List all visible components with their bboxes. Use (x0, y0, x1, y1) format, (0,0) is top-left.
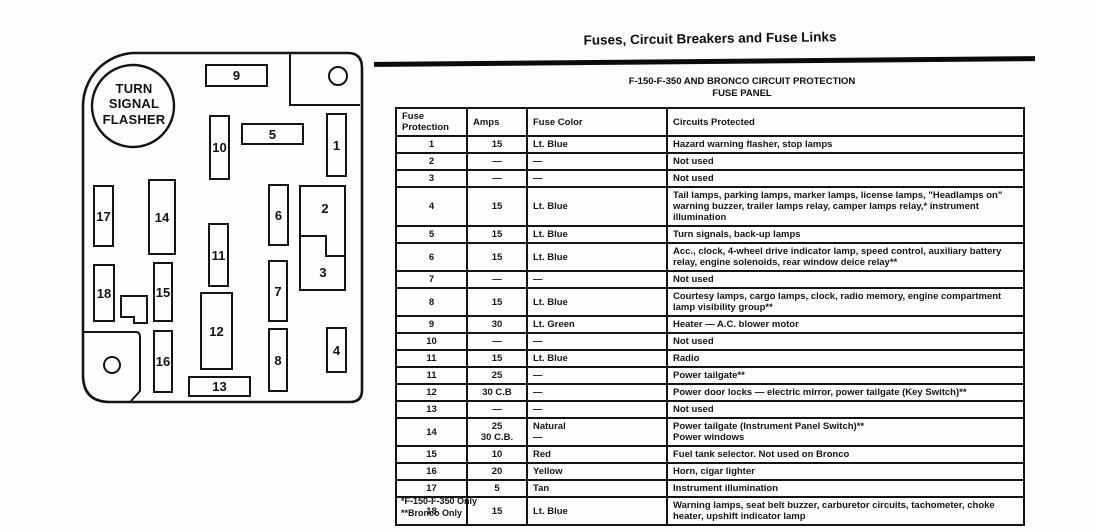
table-row: 815Lt. BlueCourtesy lamps, cargo lamps, … (396, 288, 1024, 316)
table-row: 1125—Power tailgate** (396, 367, 1024, 384)
cell-fuse: 9 (396, 316, 467, 333)
fusebox-7: 7 (268, 260, 288, 322)
cell-circuits: Not used (667, 153, 1024, 170)
cell-amps: 15 (467, 243, 527, 271)
cell-color: Lt. Blue (527, 497, 667, 525)
cell-amps: — (467, 271, 527, 288)
cell-circuits: Not used (667, 401, 1024, 418)
fuse-panel-table: Fuse Protection Amps Fuse Color Circuits… (395, 107, 1025, 526)
cell-circuits: Warning lamps, seat belt buzzer, carbure… (667, 497, 1024, 525)
footnote-bronco: **Bronco Only (401, 507, 477, 519)
cell-color: — (527, 401, 667, 418)
table-row: 7——Not used (396, 271, 1024, 288)
table-row: 1425 30 C.B.Natural —Power tailgate (Ins… (396, 418, 1024, 446)
table-row: 175TanInstrument illumination (396, 480, 1024, 497)
cell-amps: 15 (467, 136, 527, 153)
cell-color: — (527, 170, 667, 187)
table-row: 1510RedFuel tank selector. Not used on B… (396, 446, 1024, 463)
table-row: 2——Not used (396, 153, 1024, 170)
header-fuse-color: Fuse Color (527, 108, 667, 136)
fusebox-6: 6 (268, 184, 289, 246)
cell-circuits: Acc., clock, 4-wheel drive indicator lam… (667, 243, 1024, 271)
table-row: 3——Not used (396, 170, 1024, 187)
header-fuse-protection: Fuse Protection (396, 108, 467, 136)
cell-circuits: Not used (667, 333, 1024, 350)
cell-amps: 15 (467, 350, 527, 367)
table-row: 415Lt. BlueTail lamps, parking lamps, ma… (396, 187, 1024, 226)
cell-fuse: 13 (396, 401, 467, 418)
cell-circuits: Fuel tank selector. Not used on Bronco (667, 446, 1024, 463)
cell-amps: 15 (467, 288, 527, 316)
cell-circuits: Power tailgate (Instrument Panel Switch)… (667, 418, 1024, 446)
cell-circuits: Power tailgate** (667, 367, 1024, 384)
cell-color: Lt. Blue (527, 136, 667, 153)
table-row: 1230 C.B—Power door locks — electric mir… (396, 384, 1024, 401)
cell-amps: 30 (467, 316, 527, 333)
header-circuits-protected: Circuits Protected (667, 108, 1024, 136)
fusebox-1: 1 (326, 113, 347, 177)
footnote-f150: *F-150-F-350 Only (401, 495, 477, 507)
cell-color: — (527, 367, 667, 384)
fusebox-9-label: 9 (233, 68, 240, 83)
fusebox-2-label: 2 (311, 197, 339, 219)
table-row: 515Lt. BlueTurn signals, back-up lamps (396, 226, 1024, 243)
cell-fuse: 11 (396, 350, 467, 367)
cell-color: — (527, 384, 667, 401)
cell-amps: 10 (467, 446, 527, 463)
table-row: 13——Not used (396, 401, 1024, 418)
fusebox-1-label: 1 (333, 138, 340, 153)
fusebox-9: 9 (205, 64, 268, 87)
fusebox-10: 10 (209, 115, 230, 180)
cell-fuse: 3 (396, 170, 467, 187)
cell-circuits: Horn, cigar lighter (667, 463, 1024, 480)
fusebox-8-label: 8 (274, 353, 281, 368)
table-header-row: Fuse Protection Amps Fuse Color Circuits… (396, 108, 1024, 136)
cell-circuits: Power door locks — electric mirror, powe… (667, 384, 1024, 401)
fusebox-17: 17 (93, 185, 114, 247)
fusebox-7-label: 7 (274, 284, 281, 299)
table-row: 615Lt. BlueAcc., clock, 4-wheel drive in… (396, 243, 1024, 271)
cell-circuits: Not used (667, 170, 1024, 187)
manual-page: { "page": { "title": "Fuses, Circuit Bre… (0, 0, 1096, 532)
cell-fuse: 5 (396, 226, 467, 243)
fusebox-15-label: 15 (156, 285, 170, 300)
fusebox-5-label: 5 (269, 127, 276, 142)
fusebox-12-label: 12 (209, 324, 223, 339)
cell-fuse: 4 (396, 187, 467, 226)
cell-color: Natural — (527, 418, 667, 446)
page-title: Fuses, Circuit Breakers and Fuse Links (560, 29, 860, 48)
fuse-panel-outline-svg (0, 0, 400, 440)
turn-signal-flasher-label: TURN SIGNAL FLASHER (97, 81, 171, 127)
fusebox-16-label: 16 (156, 354, 170, 369)
cell-color: Lt. Green (527, 316, 667, 333)
cell-fuse: 16 (396, 463, 467, 480)
fusebox-11-label: 11 (212, 248, 226, 263)
cell-circuits: Turn signals, back-up lamps (667, 226, 1024, 243)
cell-fuse: 14 (396, 418, 467, 446)
cell-fuse: 6 (396, 243, 467, 271)
title-underline-rule (374, 56, 1035, 67)
cell-circuits: Instrument illumination (667, 480, 1024, 497)
cell-fuse: 1 (396, 136, 467, 153)
fusebox-11: 11 (208, 223, 229, 287)
table-footnotes: *F-150-F-350 Only **Bronco Only (401, 495, 477, 519)
cell-amps: 25 (467, 367, 527, 384)
cell-color: Lt. Blue (527, 187, 667, 226)
cell-fuse: 7 (396, 271, 467, 288)
cell-color: — (527, 271, 667, 288)
cell-circuits: Hazard warning flasher, stop lamps (667, 136, 1024, 153)
fusebox-10-label: 10 (212, 140, 226, 155)
subtitle-line1: F-150-F-350 AND BRONCO CIRCUIT PROTECTIO… (492, 76, 992, 88)
cell-color: Red (527, 446, 667, 463)
cell-amps: — (467, 401, 527, 418)
cell-fuse: 11 (396, 367, 467, 384)
subtitle-line2: FUSE PANEL (492, 88, 992, 100)
fusebox-4-label: 4 (333, 343, 340, 358)
cell-amps: — (467, 333, 527, 350)
fusebox-12: 12 (200, 292, 233, 370)
cell-fuse: 10 (396, 333, 467, 350)
cell-color: — (527, 153, 667, 170)
cell-amps: — (467, 170, 527, 187)
fusebox-16: 16 (153, 330, 173, 393)
fusebox-14-label: 14 (155, 210, 169, 225)
cell-fuse: 12 (396, 384, 467, 401)
header-amps: Amps (467, 108, 527, 136)
cell-amps: 25 30 C.B. (467, 418, 527, 446)
fusebox-8: 8 (268, 328, 288, 392)
cell-fuse: 8 (396, 288, 467, 316)
cell-circuits: Courtesy lamps, cargo lamps, clock, radi… (667, 288, 1024, 316)
table-row: 1115Lt. BlueRadio (396, 350, 1024, 367)
cell-color: — (527, 333, 667, 350)
fusebox-18: 18 (93, 264, 115, 322)
fusebox-18-label: 18 (97, 286, 111, 301)
cell-circuits: Tail lamps, parking lamps, marker lamps,… (667, 187, 1024, 226)
table-subtitle: F-150-F-350 AND BRONCO CIRCUIT PROTECTIO… (492, 76, 992, 100)
cell-color: Yellow (527, 463, 667, 480)
table-row: 1815Lt. BlueWarning lamps, seat belt buz… (396, 497, 1024, 525)
cell-color: Lt. Blue (527, 226, 667, 243)
fusebox-6-label: 6 (275, 208, 282, 223)
cell-circuits: Heater — A.C. blower motor (667, 316, 1024, 333)
cell-amps: 15 (467, 226, 527, 243)
table-row: 115Lt. BlueHazard warning flasher, stop … (396, 136, 1024, 153)
fusebox-13-label: 13 (212, 379, 226, 394)
table-row: 1620YellowHorn, cigar lighter (396, 463, 1024, 480)
fusebox-17-label: 17 (96, 209, 110, 224)
cell-amps: 15 (467, 187, 527, 226)
table-row: 10——Not used (396, 333, 1024, 350)
table-row: 930Lt. GreenHeater — A.C. blower motor (396, 316, 1024, 333)
cell-amps: 30 C.B (467, 384, 527, 401)
cell-amps: 20 (467, 463, 527, 480)
cell-circuits: Not used (667, 271, 1024, 288)
cell-fuse: 2 (396, 153, 467, 170)
fusebox-4: 4 (326, 327, 347, 373)
cell-color: Lt. Blue (527, 350, 667, 367)
fuse-panel-diagram: TURN SIGNAL FLASHER 1 2 3 4 5 6 7 8 9 10… (0, 0, 400, 440)
cell-color: Lt. Blue (527, 288, 667, 316)
cell-fuse: 15 (396, 446, 467, 463)
cell-circuits: Radio (667, 350, 1024, 367)
cell-amps: — (467, 153, 527, 170)
fusebox-13: 13 (188, 376, 251, 397)
fusebox-5: 5 (241, 123, 304, 145)
cell-color: Lt. Blue (527, 243, 667, 271)
fusebox-3-label: 3 (309, 261, 337, 283)
fusebox-14: 14 (148, 179, 176, 255)
cell-color: Tan (527, 480, 667, 497)
fusebox-15: 15 (153, 262, 173, 322)
